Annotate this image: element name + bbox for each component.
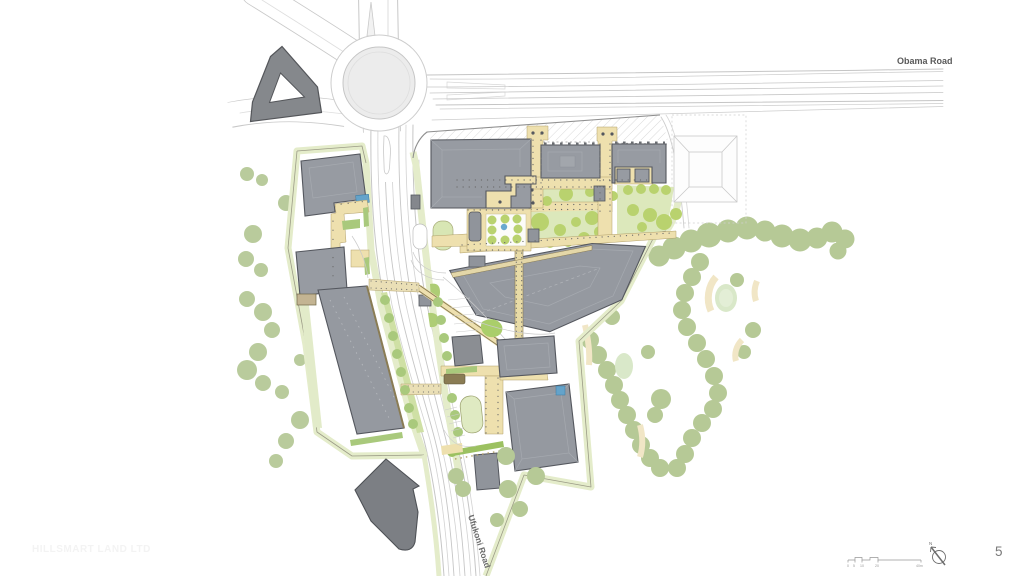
svg-text:5: 5 — [995, 544, 1003, 559]
svg-text:0: 0 — [847, 564, 849, 568]
svg-text:40m: 40m — [916, 564, 923, 568]
svg-text:5: 5 — [853, 564, 855, 568]
svg-text:10: 10 — [860, 564, 864, 568]
svg-text:Obama Road: Obama Road — [897, 56, 953, 66]
svg-text:N: N — [929, 541, 932, 546]
svg-text:HILLSMART LAND LTD: HILLSMART LAND LTD — [32, 544, 151, 555]
svg-text:20: 20 — [875, 564, 879, 568]
